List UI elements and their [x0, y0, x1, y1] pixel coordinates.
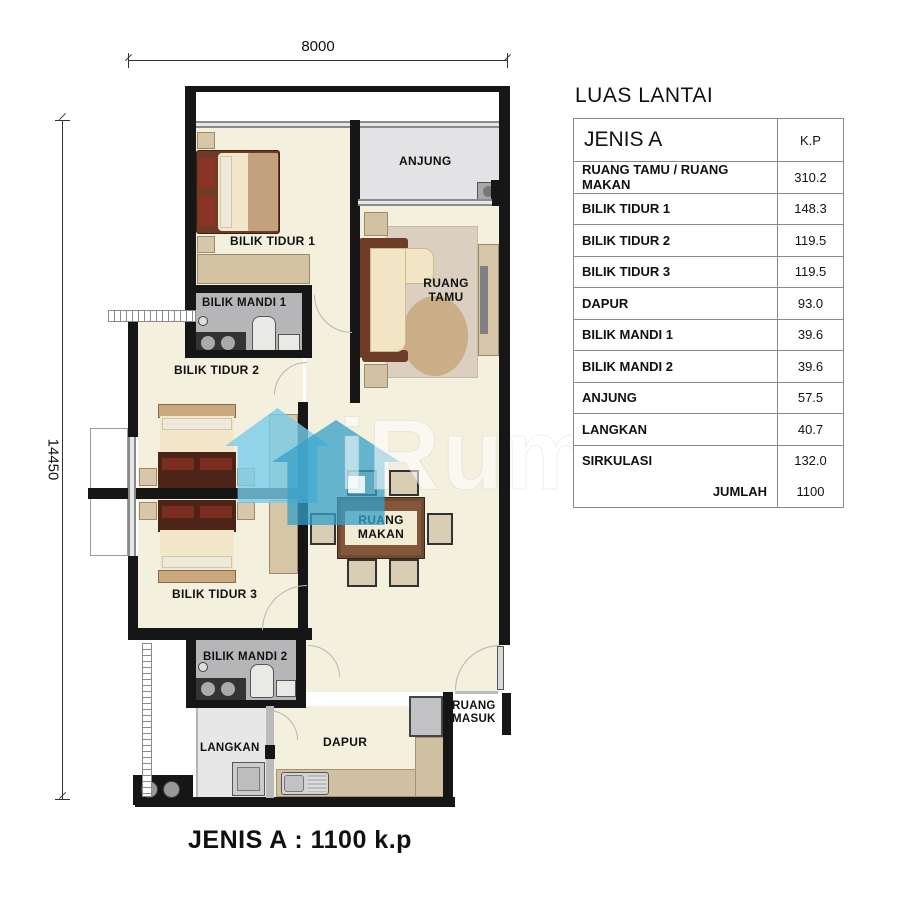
basin: [221, 682, 235, 696]
room-label-bilik-tidur-1: BILIK TIDUR 1: [230, 235, 315, 249]
floor-plan-sheet: 8000 14450: [0, 0, 900, 900]
wall-segment: [88, 488, 308, 499]
floor-area-table: JENIS A K.P RUANG TAMU / RUANG MAKAN310.…: [573, 118, 844, 508]
window-band: [128, 437, 136, 556]
room-label-dapur: DAPUR: [323, 736, 367, 750]
dimension-slash: [59, 113, 66, 120]
dimension-tick: [55, 799, 70, 800]
window-band: [196, 121, 350, 128]
nightstand: [237, 502, 255, 520]
nightstand: [139, 502, 157, 520]
bed3-accent: [200, 506, 232, 518]
table-total-label: JUMLAH: [574, 476, 778, 507]
wardrobe: [197, 254, 310, 284]
fridge: [409, 696, 443, 737]
table-row-label: BILIK MANDI 1: [574, 320, 778, 351]
shower-head-icon: [198, 316, 208, 326]
table-header-unit: K.P: [778, 119, 843, 161]
table-row: BILIK TIDUR 3119.5: [574, 257, 843, 289]
table-row-label: RUANG TAMU / RUANG MAKAN: [574, 162, 778, 193]
room-label-bilik-tidur-2: BILIK TIDUR 2: [174, 364, 259, 378]
dimension-line-left: [62, 120, 63, 800]
table-row-value: 39.6: [778, 351, 843, 382]
table-row-value: 119.5: [778, 225, 843, 256]
washing-machine-lid: [237, 767, 260, 791]
bed3-pillow: [162, 556, 232, 568]
room-label-bilik-mandi-2: BILIK MANDI 2: [203, 651, 287, 664]
table-title: LUAS LANTAI: [575, 84, 713, 108]
wall-segment: [350, 120, 360, 403]
toilet: [250, 664, 274, 698]
plan-caption: JENIS A : 1100 k.p: [188, 826, 412, 855]
table-header-row: JENIS A K.P: [574, 119, 843, 162]
wall-segment: [186, 700, 306, 708]
kitchen-counter: [415, 737, 444, 797]
bed1-headboard: [199, 158, 215, 188]
table-row-label: BILIK TIDUR 2: [574, 225, 778, 256]
wall-segment: [186, 285, 312, 293]
bay-window: [90, 428, 128, 489]
nightstand: [139, 468, 157, 486]
sink-drainer: [308, 775, 326, 792]
nightstand: [197, 132, 215, 149]
table-row: ANJUNG57.5: [574, 383, 843, 415]
dining-chair: [389, 559, 419, 587]
rug-oval: [402, 296, 468, 376]
table-row-value: 132.0: [778, 446, 843, 477]
room-label-langkan: LANGKAN: [200, 742, 260, 755]
wall-segment: [302, 285, 312, 358]
dimension-width-label: 8000: [128, 38, 508, 55]
table-total-value: 1100: [778, 476, 843, 507]
table-row-value: 310.2: [778, 162, 843, 193]
window-band: [358, 199, 492, 206]
table-row-value: 119.5: [778, 257, 843, 288]
room-label-ruang-makan: RUANG MAKAN: [347, 514, 415, 542]
sofa-seat-side: [370, 248, 406, 352]
dining-chair: [389, 470, 419, 496]
table-row-value: 39.6: [778, 320, 843, 351]
table-row-label: LANGKAN: [574, 414, 778, 445]
wardrobe: [269, 500, 298, 574]
door-post: [265, 745, 275, 759]
bed3-headboard: [158, 570, 236, 583]
wall-segment: [186, 350, 312, 358]
wall-segment: [491, 180, 500, 206]
table-row: BILIK TIDUR 2119.5: [574, 225, 843, 257]
table-total-row: JUMLAH 1100: [574, 476, 843, 507]
sink-bowl: [284, 775, 304, 792]
dining-chair: [310, 513, 336, 545]
table-row-value: 57.5: [778, 383, 843, 414]
room-label-anjung: ANJUNG: [399, 155, 451, 169]
table-row: BILIK MANDI 239.6: [574, 351, 843, 383]
wall-segment: [186, 640, 196, 708]
window-band: [360, 121, 499, 128]
louvre-window: [142, 643, 152, 797]
table-header-type: JENIS A: [574, 119, 778, 161]
table-row-value: 40.7: [778, 414, 843, 445]
bed2-accent: [200, 458, 232, 470]
side-table: [364, 364, 388, 388]
nightstand: [237, 468, 255, 486]
louvre-window: [108, 310, 196, 322]
bed3-accent: [162, 506, 194, 518]
table-row-label: DAPUR: [574, 288, 778, 319]
side-table: [364, 212, 388, 236]
entry-door-leaf: [497, 646, 504, 690]
table-row-value: 93.0: [778, 288, 843, 319]
basin: [221, 336, 235, 350]
room-label-bilik-tidur-3: BILIK TIDUR 3: [172, 588, 257, 602]
room-label-ruang-tamu: RUANG TAMU: [413, 277, 479, 305]
tv: [480, 266, 488, 334]
room-label-bilik-mandi-1: BILIK MANDI 1: [202, 297, 286, 310]
bed1-pillow: [220, 156, 232, 228]
table-row: BILIK MANDI 139.6: [574, 320, 843, 352]
basin: [201, 682, 215, 696]
table-row-label: BILIK TIDUR 3: [574, 257, 778, 288]
wall-segment: [296, 640, 306, 708]
table-row-label: ANJUNG: [574, 383, 778, 414]
dining-chair: [347, 559, 377, 587]
table-row-label: SIRKULASI: [574, 446, 778, 477]
wall-segment: [185, 86, 509, 92]
shower-tray: [276, 680, 296, 697]
table-row-label: BILIK TIDUR 1: [574, 194, 778, 225]
bed2-accent: [162, 458, 194, 470]
bed1-headboard: [199, 196, 215, 226]
dimension-line-top: [128, 60, 508, 61]
bed1-blanket: [248, 153, 278, 231]
room-label-ruang-masuk: RUANG MASUK: [452, 700, 504, 726]
wardrobe: [269, 414, 298, 498]
toilet: [252, 316, 276, 352]
dimension-tick: [55, 120, 70, 121]
table-body: RUANG TAMU / RUANG MAKAN310.2BILIK TIDUR…: [574, 162, 843, 476]
table-row: SIRKULASI132.0: [574, 446, 843, 477]
wall-segment: [499, 86, 510, 645]
table-row: RUANG TAMU / RUANG MAKAN310.2: [574, 162, 843, 194]
bay-window: [90, 492, 128, 556]
gas-cylinder: [163, 781, 180, 798]
entry-threshold: [455, 691, 498, 694]
bed2-pillow: [162, 418, 232, 430]
table-row: LANGKAN40.7: [574, 414, 843, 446]
table-row-value: 148.3: [778, 194, 843, 225]
table-row: BILIK TIDUR 1148.3: [574, 194, 843, 226]
table-row: DAPUR93.0: [574, 288, 843, 320]
wall-segment: [128, 313, 138, 437]
dimension-height-label: 14450: [45, 420, 62, 500]
basin: [201, 336, 215, 350]
table-row-label: BILIK MANDI 2: [574, 351, 778, 382]
dining-chair: [427, 513, 453, 545]
dining-chair: [347, 470, 377, 496]
nightstand: [197, 236, 215, 253]
